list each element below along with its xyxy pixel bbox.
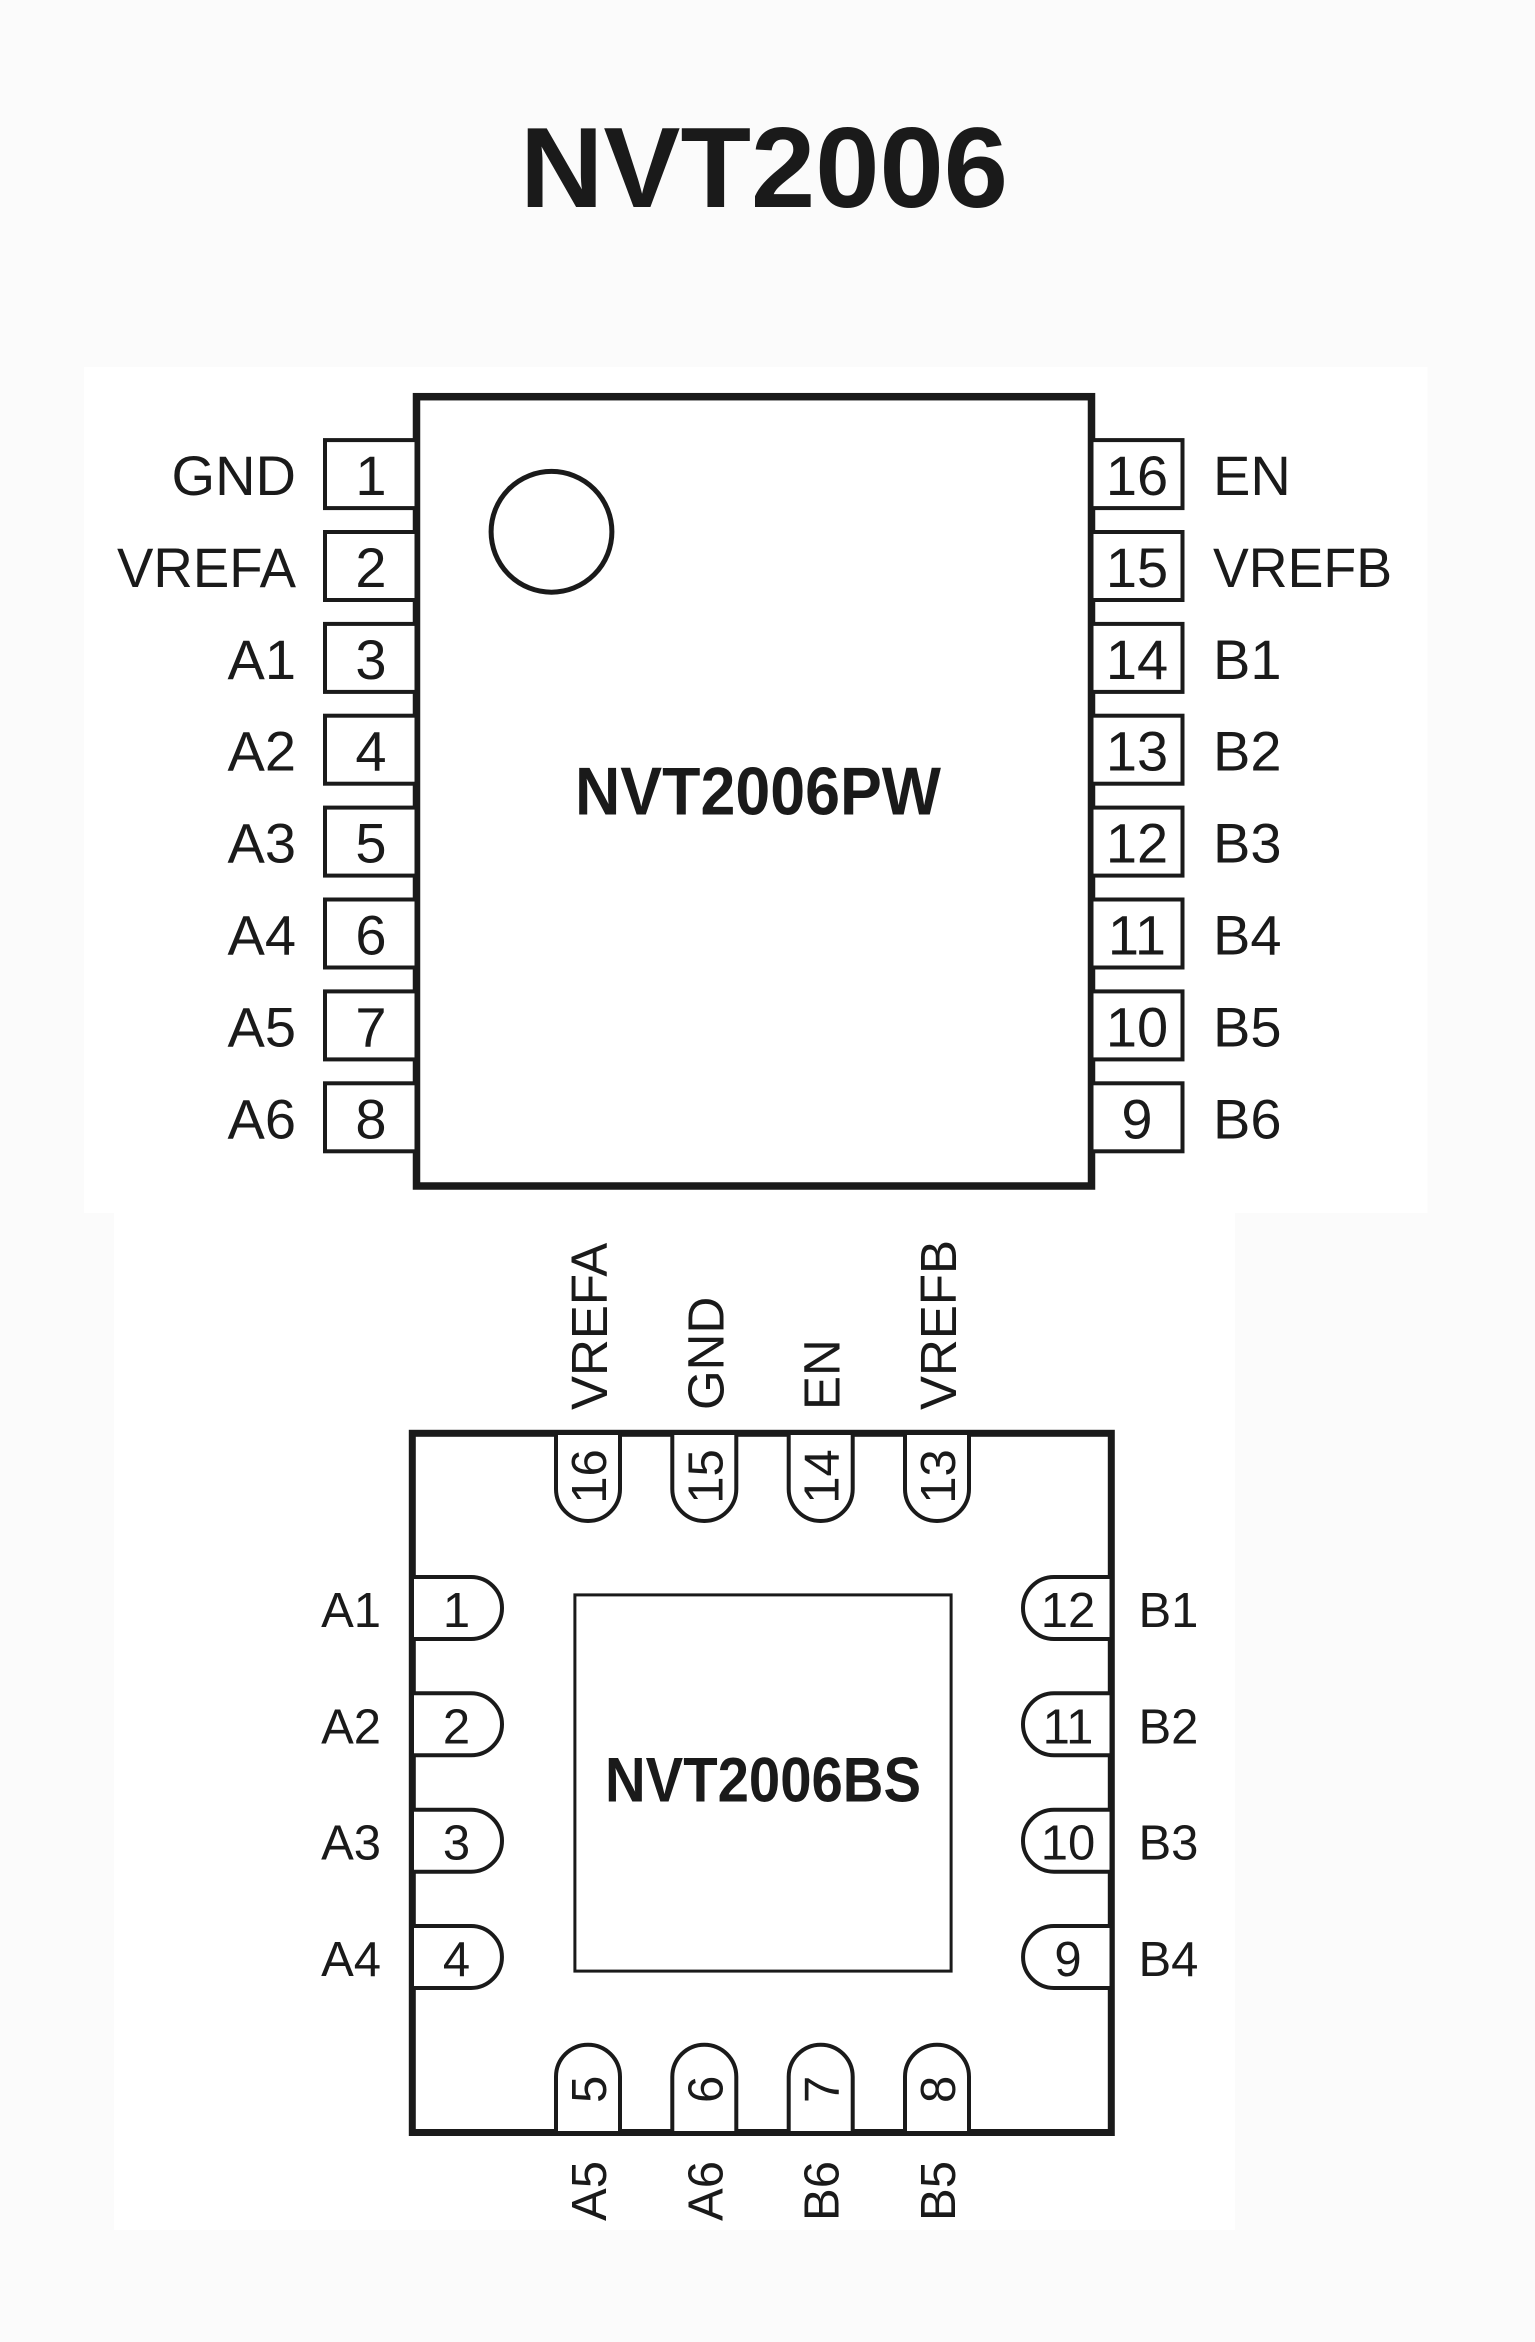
svg-text:13: 13 — [912, 1449, 966, 1504]
svg-text:16: 16 — [1106, 444, 1168, 507]
svg-text:A3: A3 — [228, 812, 297, 875]
svg-text:12: 12 — [1041, 1584, 1096, 1638]
svg-text:12: 12 — [1106, 812, 1168, 875]
svg-text:B6: B6 — [796, 2161, 850, 2221]
svg-text:6: 6 — [355, 904, 386, 967]
svg-text:B3: B3 — [1213, 812, 1282, 875]
svg-text:NVT2006: NVT2006 — [520, 105, 1008, 232]
svg-text:B2: B2 — [1139, 1700, 1199, 1754]
svg-text:10: 10 — [1106, 995, 1168, 1058]
svg-text:10: 10 — [1041, 1817, 1096, 1871]
svg-text:14: 14 — [796, 1449, 850, 1504]
svg-text:2: 2 — [355, 536, 386, 599]
svg-text:A6: A6 — [679, 2161, 733, 2221]
svg-text:15: 15 — [1106, 536, 1168, 599]
svg-text:B5: B5 — [912, 2161, 966, 2221]
svg-text:B2: B2 — [1213, 720, 1282, 783]
svg-text:1: 1 — [443, 1584, 470, 1638]
svg-text:13: 13 — [1106, 720, 1168, 783]
svg-text:B4: B4 — [1213, 904, 1282, 967]
svg-text:7: 7 — [355, 995, 386, 1058]
svg-text:NVT2006PW: NVT2006PW — [575, 754, 942, 830]
svg-text:B4: B4 — [1139, 1933, 1199, 1987]
svg-text:A4: A4 — [228, 904, 297, 967]
svg-text:3: 3 — [443, 1817, 470, 1871]
svg-text:VREFB: VREFB — [1213, 536, 1392, 599]
svg-text:A4: A4 — [321, 1933, 381, 1987]
svg-text:8: 8 — [355, 1087, 386, 1150]
svg-text:B1: B1 — [1139, 1584, 1199, 1638]
svg-text:9: 9 — [1121, 1087, 1152, 1150]
svg-text:B1: B1 — [1213, 628, 1282, 691]
svg-text:A6: A6 — [228, 1087, 297, 1150]
svg-text:NVT2006BS: NVT2006BS — [605, 1745, 921, 1815]
svg-text:14: 14 — [1106, 628, 1168, 691]
svg-text:4: 4 — [355, 720, 386, 783]
svg-text:15: 15 — [679, 1449, 733, 1504]
svg-text:EN: EN — [794, 1339, 851, 1410]
svg-text:EN: EN — [1213, 444, 1291, 507]
svg-text:16: 16 — [563, 1449, 617, 1504]
svg-text:A2: A2 — [321, 1700, 381, 1754]
svg-text:1: 1 — [355, 444, 386, 507]
svg-text:6: 6 — [679, 2076, 733, 2103]
svg-text:VREFA: VREFA — [117, 536, 297, 599]
svg-text:A1: A1 — [321, 1584, 381, 1638]
svg-text:A3: A3 — [321, 1817, 381, 1871]
svg-text:A5: A5 — [563, 2161, 617, 2221]
svg-text:VREFA: VREFA — [561, 1243, 618, 1410]
svg-text:11: 11 — [1108, 904, 1166, 967]
svg-text:A5: A5 — [228, 995, 297, 1058]
svg-text:A1: A1 — [228, 628, 297, 691]
svg-text:VREFB: VREFB — [910, 1240, 967, 1410]
svg-text:GND: GND — [172, 444, 296, 507]
svg-text:B6: B6 — [1213, 1087, 1282, 1150]
svg-text:3: 3 — [355, 628, 386, 691]
svg-text:B5: B5 — [1213, 995, 1282, 1058]
svg-text:GND: GND — [677, 1297, 734, 1410]
svg-text:8: 8 — [912, 2076, 966, 2103]
svg-text:4: 4 — [443, 1933, 470, 1987]
svg-text:2: 2 — [443, 1700, 470, 1754]
svg-text:11: 11 — [1043, 1700, 1094, 1754]
svg-text:9: 9 — [1054, 1933, 1081, 1987]
svg-text:7: 7 — [796, 2076, 850, 2103]
svg-text:5: 5 — [355, 812, 386, 875]
svg-text:A2: A2 — [228, 720, 297, 783]
svg-text:5: 5 — [563, 2076, 617, 2103]
svg-text:B3: B3 — [1139, 1817, 1199, 1871]
